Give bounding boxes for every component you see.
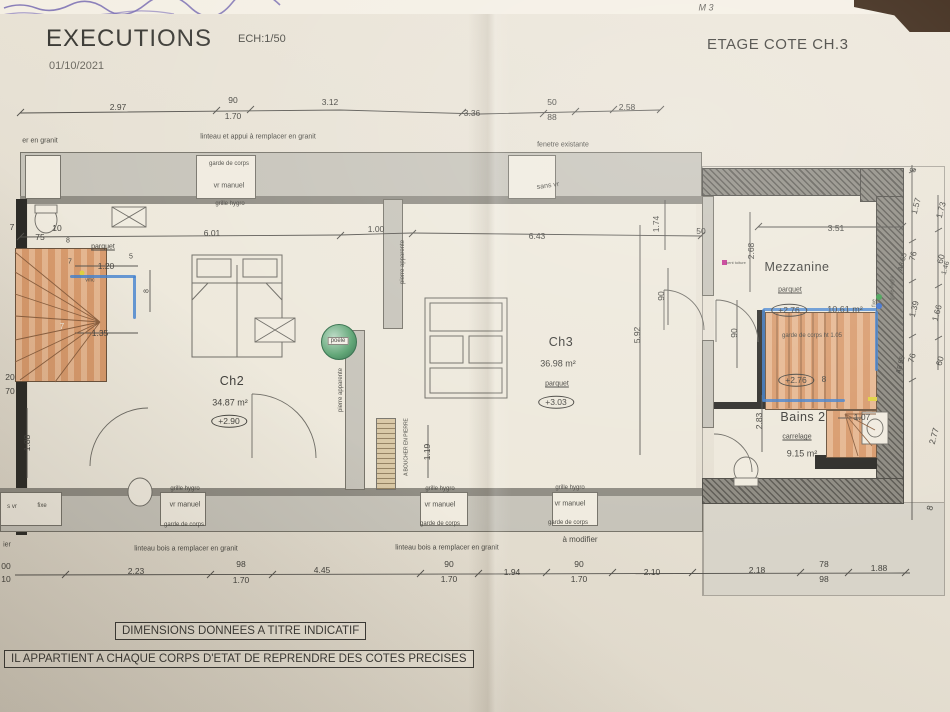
lbl-annotation: vr manuel bbox=[214, 183, 245, 190]
lbl-annotation: A BOUCHER EN PIERRE bbox=[405, 418, 410, 476]
dim-annotation: 75 bbox=[35, 233, 44, 242]
dim-annotation: 1.20 bbox=[98, 262, 115, 271]
dim-annotation: 1.74 bbox=[652, 216, 661, 233]
dim-annotation: 10 bbox=[1, 575, 10, 584]
dim-annotation: 8 bbox=[908, 167, 917, 174]
room-annotation: Bains 2 bbox=[780, 411, 825, 424]
hand-annotation: M 3 bbox=[698, 4, 713, 13]
dim-annotation: 1.88 bbox=[23, 435, 32, 452]
lbl-annotation: pierre apparente bbox=[338, 368, 344, 412]
dim-annotation: 2.10 bbox=[644, 568, 661, 577]
lbl-annotation: linteau et appui à remplacer en granit bbox=[200, 134, 316, 141]
dim-annotation: 1.39 bbox=[908, 300, 920, 318]
lbl-annotation: grille hygro bbox=[425, 486, 454, 492]
dim-annotation: 60 bbox=[935, 355, 946, 366]
dim-annotation: 90 bbox=[657, 291, 666, 300]
dim-annotation: 8 bbox=[144, 289, 151, 293]
lbl-annotation: linteau bois a remplacer en granit bbox=[395, 545, 499, 552]
strike-annotation: carrelage bbox=[782, 434, 811, 441]
lbl-annotation: garde de corps bbox=[548, 520, 588, 526]
lbl-annotation: fenetre existante bbox=[537, 142, 589, 149]
lbl-annotation: sans vr bbox=[536, 181, 559, 191]
lbl-annotation: pierre apparente bbox=[400, 240, 406, 284]
dim-annotation: 70 bbox=[5, 387, 14, 396]
lbl-annotation: vent toiture bbox=[726, 261, 746, 265]
floor-plan-photo: EXECUTIONS ECH:1/50 01/10/2021 ETAGE COT… bbox=[0, 0, 950, 712]
area-annotation: 10.61 m² bbox=[827, 306, 863, 315]
dim-annotation: 1.66 bbox=[931, 304, 943, 322]
dim-annotation: 2.97 bbox=[110, 103, 127, 112]
dim-annotation: 78 bbox=[819, 560, 828, 569]
oval-annotation: +2.76 bbox=[778, 374, 814, 387]
lbl-annotation: ier bbox=[3, 542, 11, 549]
lbl-annotation: à modifier bbox=[562, 536, 597, 544]
dim-annotation: 88 bbox=[547, 113, 556, 122]
strike-annotation: parquet bbox=[91, 244, 115, 251]
oval-annotation: +3.03 bbox=[538, 396, 574, 409]
dim-annotation: 98 bbox=[819, 575, 828, 584]
lbl-annotation: garde de corps bbox=[209, 161, 249, 167]
lbl-annotation: grille hygro bbox=[891, 276, 896, 300]
dim-annotation: 1.70 bbox=[225, 112, 242, 121]
lbl-annotation: grille hygro bbox=[170, 486, 199, 492]
dim-annotation: 1.73 bbox=[935, 201, 947, 219]
dim-annotation: 76 bbox=[908, 250, 919, 261]
lbl-annotation: vr manuel bbox=[170, 502, 201, 509]
lbl-annotation: grille hygro bbox=[555, 485, 584, 491]
lbl-annotation: garde de corps ht 1.05 bbox=[782, 333, 842, 339]
dim-annotation: 2.77 bbox=[928, 427, 940, 445]
poele-lbl-annotation: poele bbox=[328, 337, 349, 345]
dim-annotation: 2.23 bbox=[128, 567, 145, 576]
dim-annotation: 50 bbox=[696, 227, 705, 236]
dim-annotation: 10 bbox=[52, 224, 61, 233]
room-annotation: Ch2 bbox=[220, 375, 244, 388]
note-indicative-dimensions: DIMENSIONS DONNEES A TITRE INDICATIF bbox=[115, 622, 366, 640]
dim-annotation: 20 bbox=[5, 373, 14, 382]
dim-annotation: 8 bbox=[925, 505, 934, 512]
dim-annotation: 1.94 bbox=[504, 568, 521, 577]
area-annotation: 36.98 m² bbox=[540, 360, 576, 369]
area-annotation: 34.87 m² bbox=[212, 399, 248, 408]
lbl-annotation: fixe bbox=[873, 299, 878, 307]
dim-annotation: 3.12 bbox=[322, 98, 339, 107]
dim-annotation: 6.01 bbox=[204, 229, 221, 238]
dim-annotation: 7 bbox=[68, 259, 72, 266]
dim-annotation: 90 bbox=[730, 328, 739, 337]
dim-annotation: 1.00 bbox=[368, 225, 385, 234]
dim-annotation: 5.92 bbox=[633, 327, 642, 344]
strike-annotation: parquet bbox=[545, 381, 569, 388]
dim-annotation: 1.70 bbox=[233, 576, 250, 585]
room-annotation: Mezzanine bbox=[765, 261, 830, 274]
lbl-annotation: garde de corps bbox=[420, 521, 460, 527]
dim-annotation: 1.07 bbox=[854, 413, 871, 422]
area-annotation: 9.15 m² bbox=[787, 450, 818, 459]
lbl-annotation: er en granit bbox=[22, 138, 57, 145]
dim-annotation: 4.45 bbox=[314, 566, 331, 575]
lbl-annotation: fixe bbox=[37, 503, 46, 509]
dim-annotation: 1.35 bbox=[92, 329, 109, 338]
oval-annotation: +2.90 bbox=[211, 415, 247, 428]
dim-annotation: 3.36 bbox=[464, 109, 481, 118]
oval-annotation: +2.76 bbox=[771, 304, 807, 317]
dim-annotation: 8 bbox=[822, 375, 827, 384]
lbl-annotation: s vr bbox=[7, 504, 17, 510]
dim-annotation: 90 bbox=[574, 560, 583, 569]
dim-annotation: 1.70 bbox=[571, 575, 588, 584]
dim-annotation: 8 bbox=[66, 238, 70, 245]
dimw-annotation: 7 bbox=[60, 323, 64, 331]
dim-annotation: 2.68 bbox=[747, 243, 756, 260]
lbl-annotation: linteau bois a remplacer en granit bbox=[134, 546, 238, 553]
note-verify-dimensions: IL APPARTIENT A CHAQUE CORPS D'ETAT DE R… bbox=[4, 650, 474, 668]
dim-annotation: 1.88 bbox=[871, 564, 888, 573]
dim-annotation: A8 55 bbox=[895, 355, 906, 374]
dim-annotation: 90 bbox=[228, 96, 237, 105]
dim-annotation: 1.70 bbox=[441, 575, 458, 584]
dim-annotation: 2.83 bbox=[755, 413, 764, 430]
lbl-annotation: vr manuel bbox=[425, 502, 456, 509]
room-annotation: Ch3 bbox=[549, 336, 573, 349]
dim-annotation: 90 bbox=[444, 560, 453, 569]
dim-annotation: 6.43 bbox=[529, 232, 546, 241]
dim-annotation: 7 bbox=[10, 223, 15, 232]
dim-annotation: 1.57 bbox=[910, 197, 922, 215]
dim-annotation: 76 bbox=[907, 352, 918, 363]
annotation-layer: 2.97901.703.123.3650882.58er en granitli… bbox=[0, 0, 950, 712]
dim-annotation: 00 bbox=[1, 562, 10, 571]
lbl-annotation: vr manuel bbox=[555, 501, 586, 508]
dim-annotation: 98 bbox=[236, 560, 245, 569]
dim-annotation: 5 bbox=[129, 254, 133, 261]
dim-annotation: 1.19 bbox=[423, 444, 432, 461]
strike-annotation: parquet bbox=[778, 287, 802, 294]
dim-annotation: 2.58 bbox=[619, 103, 636, 112]
dim-annotation: 50 bbox=[547, 98, 556, 107]
dim-annotation: 3.51 bbox=[828, 224, 845, 233]
lbl-annotation: garde de corps bbox=[164, 522, 204, 528]
lbl-annotation: vmc bbox=[85, 279, 94, 284]
dim-annotation: 2.18 bbox=[749, 566, 766, 575]
lbl-annotation: grille hygro bbox=[215, 201, 244, 207]
